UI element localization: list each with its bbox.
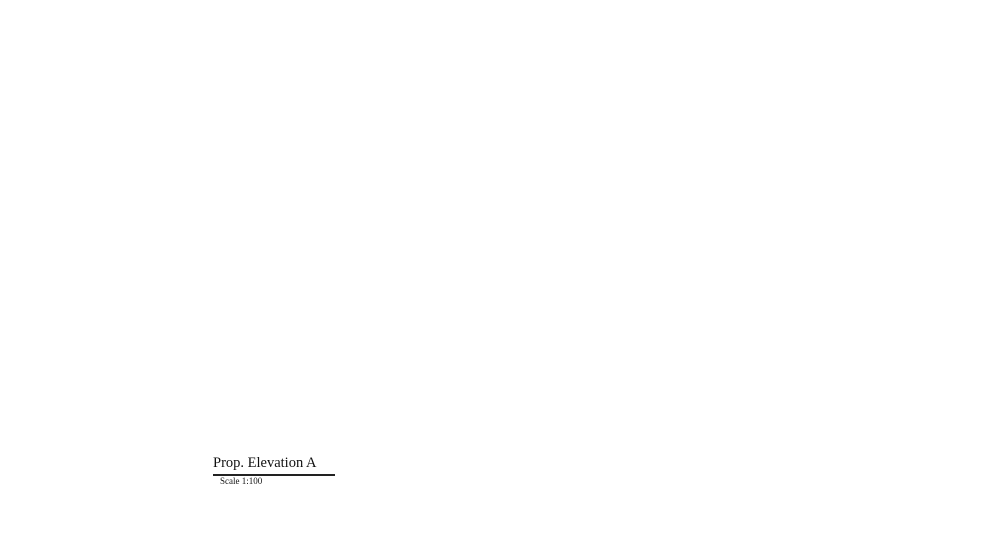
drawing-scale: Scale 1:100 bbox=[220, 476, 262, 486]
elevation-drawing: Prop. Elevation A Scale 1:100 bbox=[0, 0, 1000, 550]
drawing-title: Prop. Elevation A bbox=[213, 455, 335, 476]
callout-labels bbox=[0, 0, 1000, 550]
